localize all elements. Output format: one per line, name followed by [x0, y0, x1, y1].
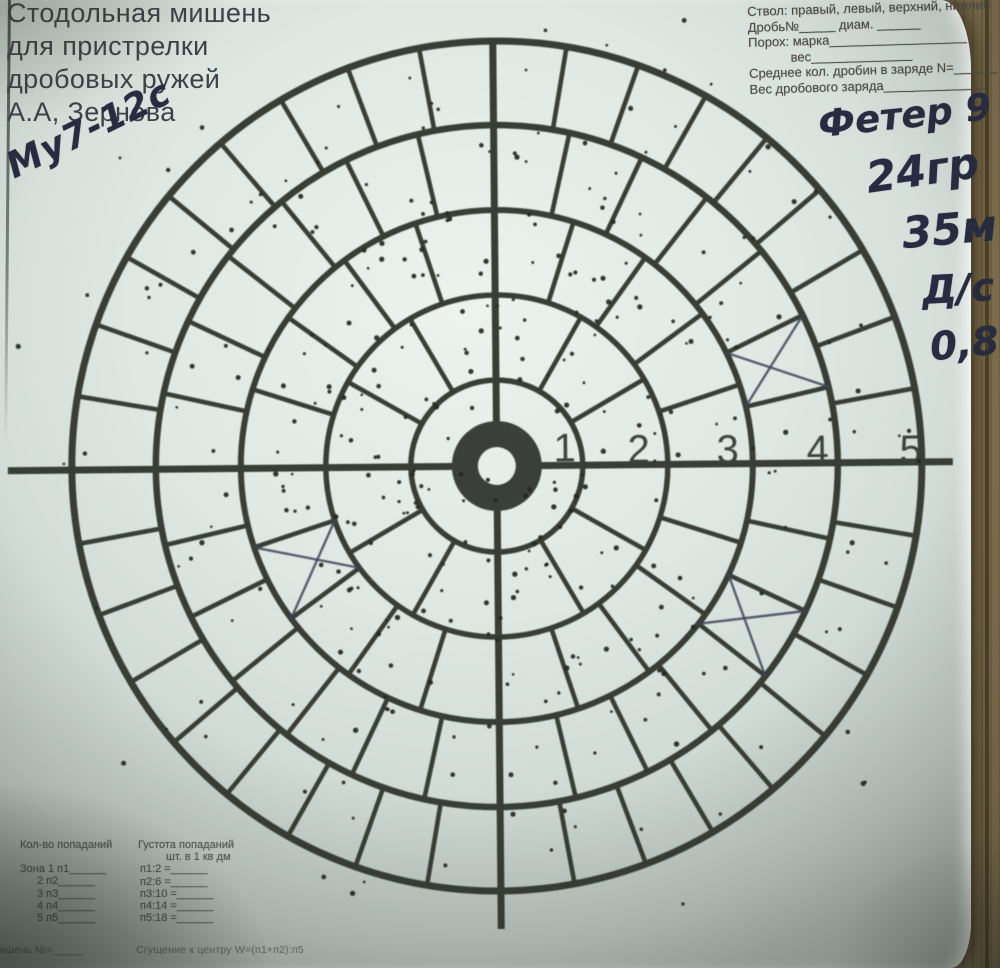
zone-number: 1 — [553, 426, 576, 470]
density-row: п2:6 =______ — [140, 876, 286, 888]
hits-row: 3 п3______ — [37, 888, 136, 900]
title-line: для пристрелки — [7, 30, 271, 63]
handwritten-distance: 35м — [900, 201, 999, 259]
target-number-blank: мишень №=_____ — [0, 944, 83, 956]
density-row: п3:10 =______ — [140, 888, 286, 900]
zone-number: 2 — [627, 428, 650, 472]
hits-row: 4 п4______ — [37, 900, 136, 912]
zone-number: 4 — [806, 428, 829, 472]
hits-row: 2 п2______ — [37, 875, 136, 887]
density-row: п1:2 =______ — [140, 863, 286, 875]
title-line: Стодольная мишень — [7, 0, 271, 30]
density-row: п4:14 =______ — [140, 900, 286, 912]
density-subheader: шт. в 1 кв дм — [166, 851, 286, 863]
handwritten-choke: Д/с — [921, 265, 995, 314]
density-header: Густота попаданий — [138, 839, 286, 851]
hundred-section-target-diagram: 12345 — [0, 0, 1000, 968]
zernov-pattern-target-photo: 12345 Стодольная мишень для пристрелки д… — [0, 0, 1000, 968]
hits-header: Кол-во попаданий — [20, 839, 136, 851]
hits-row: 5 п5______ — [37, 912, 136, 924]
results-table: Кол-во попаданий Зона 1 п1______ 2 п2___… — [8, 839, 308, 924]
density-row: п5:18 =______ — [140, 912, 286, 924]
zone-number: 5 — [899, 428, 922, 472]
handwritten-choke-value: 0,8 — [928, 319, 1000, 371]
hits-column: Кол-во попаданий Зона 1 п1______ 2 п2___… — [8, 839, 136, 924]
density-column: Густота попаданий шт. в 1 кв дм п1:2 =__… — [136, 839, 286, 924]
load-info-form: Ствол: правый, левый, верхний, нижний Др… — [747, 0, 1000, 98]
hits-row: Зона 1 п1______ — [20, 863, 136, 875]
concentration-formula: Сгущение к центру W=(п1+п2):п5 — [136, 944, 304, 956]
bullseye — [451, 421, 542, 512]
zone-number: 3 — [716, 428, 739, 472]
pen-cross-marks — [252, 315, 831, 681]
footer-formula-line: мишень №=_____ Сгущение к центру W=(п1+п… — [0, 944, 304, 956]
